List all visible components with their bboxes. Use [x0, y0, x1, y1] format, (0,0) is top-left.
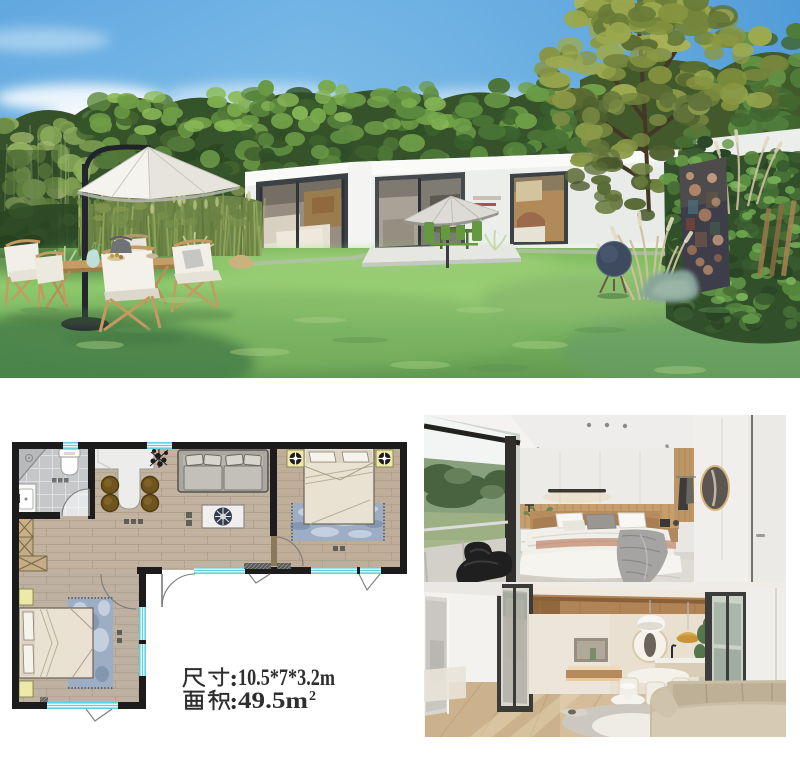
svg-text:2: 2	[309, 689, 316, 704]
svg-text:10.5*7*3.2m: 10.5*7*3.2m	[238, 665, 335, 690]
svg-text:49.5m: 49.5m	[238, 688, 308, 713]
